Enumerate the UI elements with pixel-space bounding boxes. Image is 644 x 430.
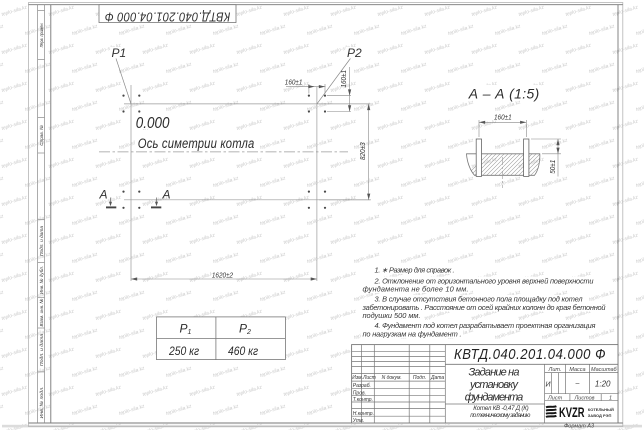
svg-text:P2: P2	[347, 46, 362, 60]
svg-text:250 кг: 250 кг	[168, 345, 200, 358]
svg-text:Листов: Листов	[574, 396, 595, 402]
svg-text:50±1: 50±1	[550, 160, 558, 174]
svg-text:–: –	[575, 381, 580, 388]
svg-text:Масштаб: Масштаб	[591, 367, 618, 373]
svg-text:установку: установку	[469, 379, 520, 391]
svg-text:КВТД.040.201.04.000 Ф: КВТД.040.201.04.000 Ф	[104, 9, 230, 24]
svg-text:Ось симетрии котла: Ось симетрии котла	[138, 136, 255, 151]
svg-text:Справ. №: Справ. №	[39, 125, 44, 146]
svg-text:Масса: Масса	[569, 367, 585, 373]
svg-text:Лист: Лист	[547, 396, 563, 402]
svg-text:Перв. примен.: Перв. примен.	[39, 23, 45, 48]
svg-text:N докум.: N докум.	[382, 375, 402, 381]
svg-text:по техническому заданию: по техническому заданию	[470, 412, 531, 419]
svg-text:1620±2: 1620±2	[212, 272, 233, 280]
svg-text:160±1: 160±1	[341, 70, 349, 88]
svg-text:KVZR: KVZR	[559, 405, 585, 420]
svg-text:Подп. и дата: Подп. и дата	[39, 226, 45, 256]
svg-text:1:20: 1:20	[595, 380, 611, 389]
svg-text:КОТЕЛЬНЫЙ: КОТЕЛЬНЫЙ	[588, 407, 614, 412]
svg-text:820±3: 820±3	[359, 142, 367, 160]
svg-text:Инв. № дубл.: Инв. № дубл.	[39, 266, 44, 294]
svg-text:Изм.Лист: Изм.Лист	[352, 375, 376, 381]
svg-text:Т.контр.: Т.контр.	[353, 397, 373, 403]
svg-text:Утв.: Утв.	[353, 418, 364, 424]
svg-text:по нагрузкам на фундамент .: по нагрузкам на фундамент .	[363, 329, 462, 338]
svg-text:КВТД.040.201.04.000 Ф: КВТД.040.201.04.000 Ф	[454, 346, 606, 362]
svg-text:Н.контр.: Н.контр.	[353, 411, 374, 417]
svg-text:160±1: 160±1	[285, 79, 303, 87]
svg-text:Лит.: Лит.	[548, 367, 562, 373]
svg-text:Задание на: Задание на	[469, 366, 520, 378]
svg-text:подушки 500 мм.: подушки 500 мм.	[363, 311, 421, 320]
svg-text:А – А (1:5): А – А (1:5)	[468, 85, 540, 101]
svg-text:160±1: 160±1	[494, 114, 512, 122]
svg-text:Взам. инв. №: Взам. инв. №	[39, 299, 44, 327]
svg-text:А: А	[162, 187, 171, 201]
svg-text:фундамента: фундамента	[465, 391, 524, 403]
svg-text:фундамента не более 10 мм.: фундамента не более 10 мм.	[363, 285, 469, 294]
svg-text:Подп. и дата: Подп. и дата	[39, 334, 45, 366]
svg-text:460 кг: 460 кг	[228, 345, 259, 358]
svg-text:P1: P1	[112, 46, 127, 60]
svg-text:0.000: 0.000	[136, 115, 170, 132]
svg-text:Котел КВ -0,47 Д (К): Котел КВ -0,47 Д (К)	[473, 405, 528, 412]
svg-text:Подп.: Подп.	[413, 375, 426, 381]
svg-text:Формат А3: Формат А3	[564, 424, 595, 430]
svg-text:1. ∗ Размер для справок .: 1. ∗ Размер для справок .	[375, 265, 455, 274]
svg-text:Дата: Дата	[430, 375, 444, 381]
svg-text:1: 1	[609, 396, 612, 402]
svg-text:Пров.: Пров.	[353, 390, 366, 396]
svg-text:Разраб.: Разраб.	[353, 383, 371, 389]
svg-text:ЗАВОД РЭП: ЗАВОД РЭП	[588, 413, 612, 418]
svg-text:А: А	[99, 187, 108, 201]
svg-text:Инв. № подл.: Инв. № подл.	[39, 387, 45, 419]
